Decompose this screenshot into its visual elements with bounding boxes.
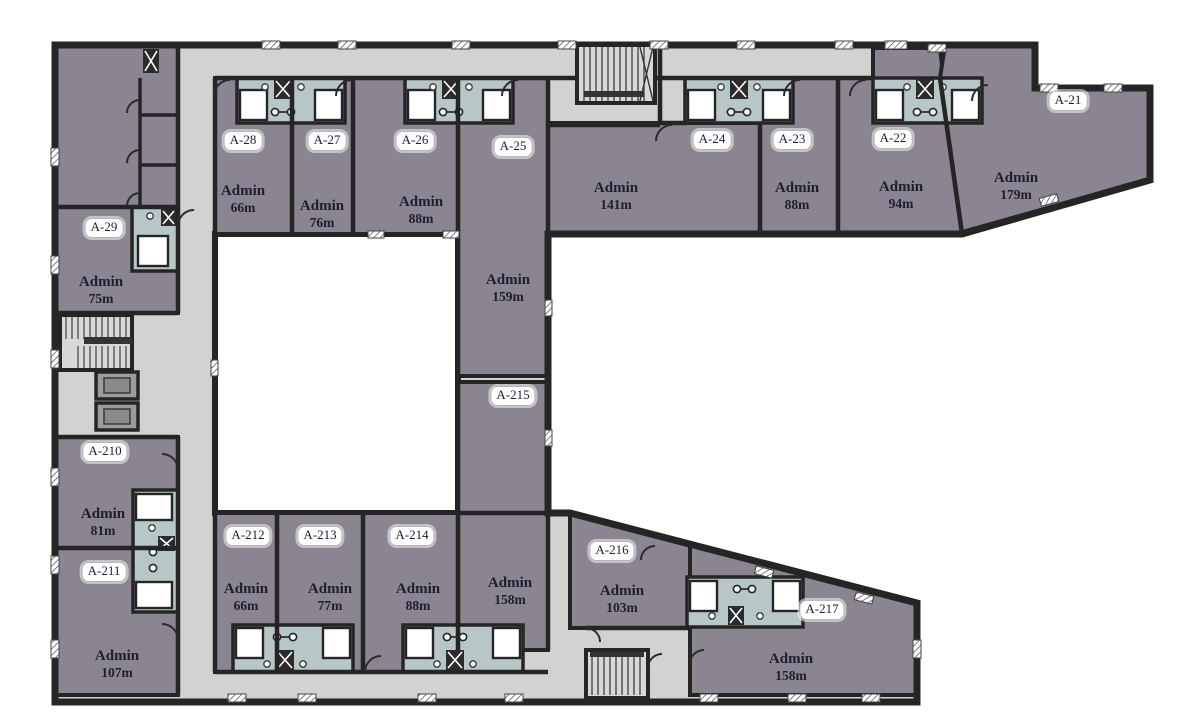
room-label-a217: Admin158m xyxy=(769,651,813,683)
room-pill-a23: A-23 xyxy=(773,130,812,150)
room-pill-a22: A-22 xyxy=(874,129,913,149)
room-pill-a28: A-28 xyxy=(224,131,263,151)
room-pill-a27: A-27 xyxy=(308,131,347,151)
room-label-a215: Admin158m xyxy=(488,575,532,607)
room-pill-a214: A-214 xyxy=(389,526,434,546)
room-label-a28: Admin66m xyxy=(221,183,265,215)
room-pill-a215: A-215 xyxy=(490,386,535,406)
room-a215 xyxy=(458,382,548,650)
room-pill-a26: A-26 xyxy=(396,131,435,151)
room-label-a29: Admin75m xyxy=(79,274,123,306)
room-label-a26: Admin88m xyxy=(399,194,443,226)
room-pill-a25: A-25 xyxy=(494,137,533,157)
room-pill-a29: A-29 xyxy=(85,218,124,238)
floor-plan-page: A-28 A-27 A-26 A-25 A-24 A-23 A-22 A-21 … xyxy=(0,0,1192,718)
room-label-a213: Admin77m xyxy=(308,581,352,613)
room-label-a211: Admin107m xyxy=(95,648,139,680)
room-topleft xyxy=(55,45,178,207)
room-pill-a24: A-24 xyxy=(693,130,732,150)
room-label-a27: Admin76m xyxy=(300,198,344,230)
room-pill-a212: A-212 xyxy=(225,526,270,546)
room-label-a23: Admin88m xyxy=(775,180,819,212)
floor-plan-drawing xyxy=(0,0,1192,718)
room-label-a210: Admin81m xyxy=(81,506,125,538)
room-pill-a216: A-216 xyxy=(589,541,634,561)
room-label-a24: Admin141m xyxy=(594,180,638,212)
room-label-a216: Admin103m xyxy=(600,583,644,615)
room-pill-a211: A-211 xyxy=(82,562,127,582)
room-label-a25: Admin159m xyxy=(486,272,530,304)
courtyard xyxy=(215,234,458,513)
room-pill-a213: A-213 xyxy=(297,526,342,546)
room-pill-a217: A-217 xyxy=(799,600,844,620)
room-pill-a21: A-21 xyxy=(1049,91,1088,111)
room-pill-a210: A-210 xyxy=(82,442,127,462)
room-label-a22: Admin94m xyxy=(879,179,923,211)
room-label-a21: Admin179m xyxy=(994,170,1038,202)
room-label-a212: Admin66m xyxy=(224,581,268,613)
room-label-a214: Admin88m xyxy=(396,581,440,613)
